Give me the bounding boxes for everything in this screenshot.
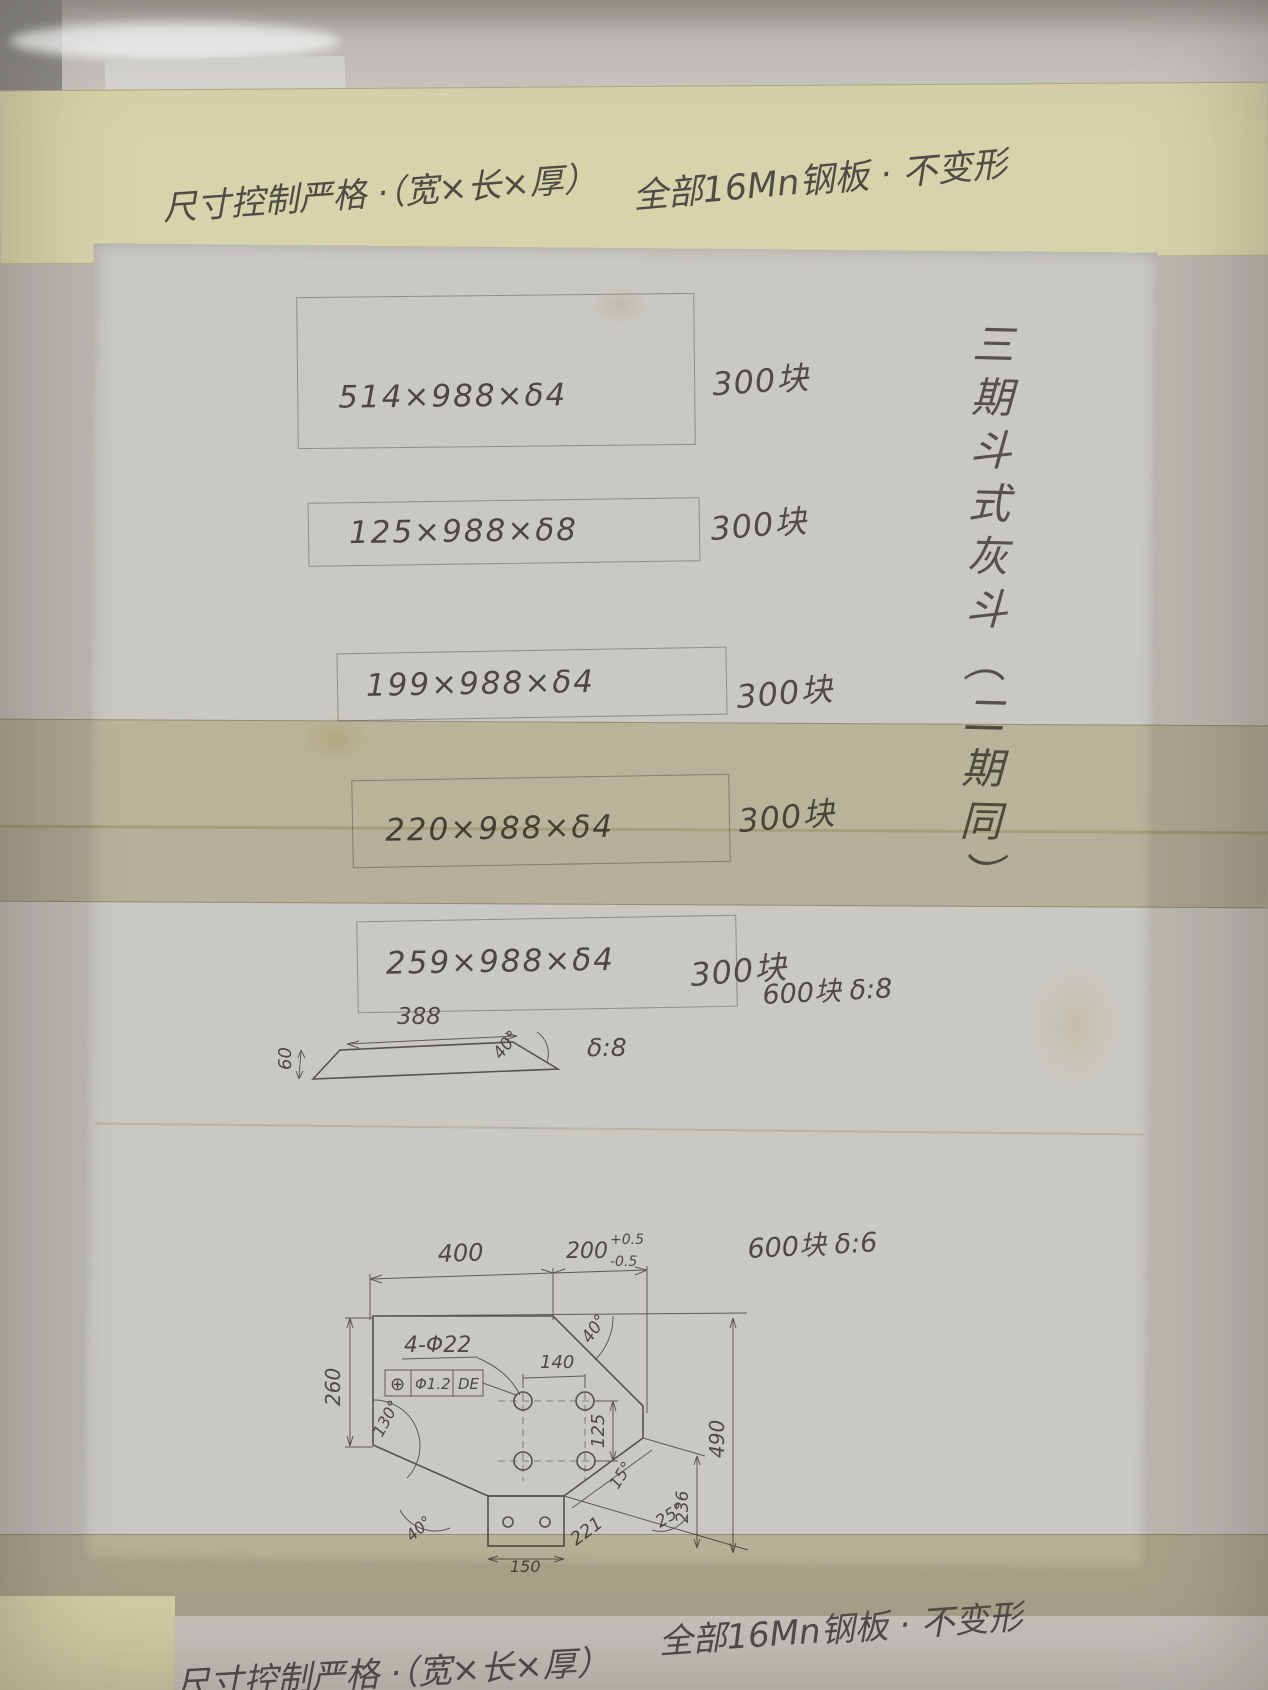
leader-line <box>478 1358 520 1395</box>
fcf-datum: DE <box>458 1375 480 1393</box>
strip-sketch: 388 60 40° δ:8 600块 δ:8 <box>285 948 915 1068</box>
plate-size-label: 514×988×δ4 <box>338 377 567 415</box>
angle-top-40: 40° <box>578 1311 612 1347</box>
plate-outline-3: 199×988×δ4 <box>336 647 727 722</box>
tab-hole <box>540 1517 550 1527</box>
dim-400: 400 <box>437 1238 484 1268</box>
strip-thickness: δ:8 <box>587 1033 627 1062</box>
dim-200-tol-minus: -0.5 <box>610 1254 637 1270</box>
plate-size-label: 125×988×δ8 <box>349 512 578 551</box>
yellow-tape-middle <box>0 719 1268 835</box>
plate-qty-label-2: 300块 <box>708 496 809 550</box>
dim-490: 490 <box>705 1420 729 1458</box>
dim-200: 200 <box>566 1239 608 1264</box>
dim-140: 140 <box>540 1352 574 1373</box>
tape-stain <box>300 715 370 763</box>
strip-angle: 40° <box>489 1027 523 1063</box>
strip-qty-note: 600块 δ:8 <box>762 973 893 1011</box>
paper-stain <box>1030 965 1120 1085</box>
fcf-position-symbol: ⊕ <box>390 1374 405 1395</box>
yellow-tape-bottom <box>0 1534 1268 1621</box>
dim-arrows <box>370 1267 647 1283</box>
holes-count-label: 4-Φ22 <box>404 1333 471 1358</box>
dim-line <box>553 1270 647 1273</box>
dim-line <box>523 1376 585 1378</box>
plate-outline-2: 125×988×δ8 <box>308 497 701 566</box>
strip-height-dim: 60 <box>275 1047 296 1070</box>
dim-125: 125 <box>588 1414 609 1448</box>
photo-of-handwritten-drawing: 尺寸控制严格 ·（宽×长×厚） 全部16Mn钢板 · 不变形 514×988×δ… <box>0 0 1268 1690</box>
yellow-tape-middle-lower <box>0 825 1268 909</box>
strip-width-dim: 388 <box>397 1004 441 1030</box>
leader-line <box>483 1383 516 1395</box>
tab-hole <box>503 1517 513 1527</box>
angle-left-130: 130° <box>369 1397 404 1440</box>
plate-qty-label-3: 300块 <box>734 664 835 718</box>
dim-line <box>370 1273 553 1279</box>
fcf-tolerance: Φ1.2 <box>415 1375 451 1393</box>
plate-qty-label-1: 300块 <box>711 353 811 406</box>
dim-260: 260 <box>321 1368 345 1406</box>
yellow-sheet-corner <box>0 1596 175 1690</box>
dim-200-tol-plus: +0.5 <box>610 1232 644 1248</box>
light-glare <box>10 22 340 60</box>
plate-outline-1: 514×988×δ4 <box>296 293 696 449</box>
drawing-qty-note: 600块 δ:6 <box>747 1227 878 1265</box>
plate-size-label: 199×988×δ4 <box>366 664 596 704</box>
plate-drawing: 400 200 +0.5 -0.5 600块 δ:6 150 4-Φ22 ⊕ Φ… <box>300 1138 920 1574</box>
